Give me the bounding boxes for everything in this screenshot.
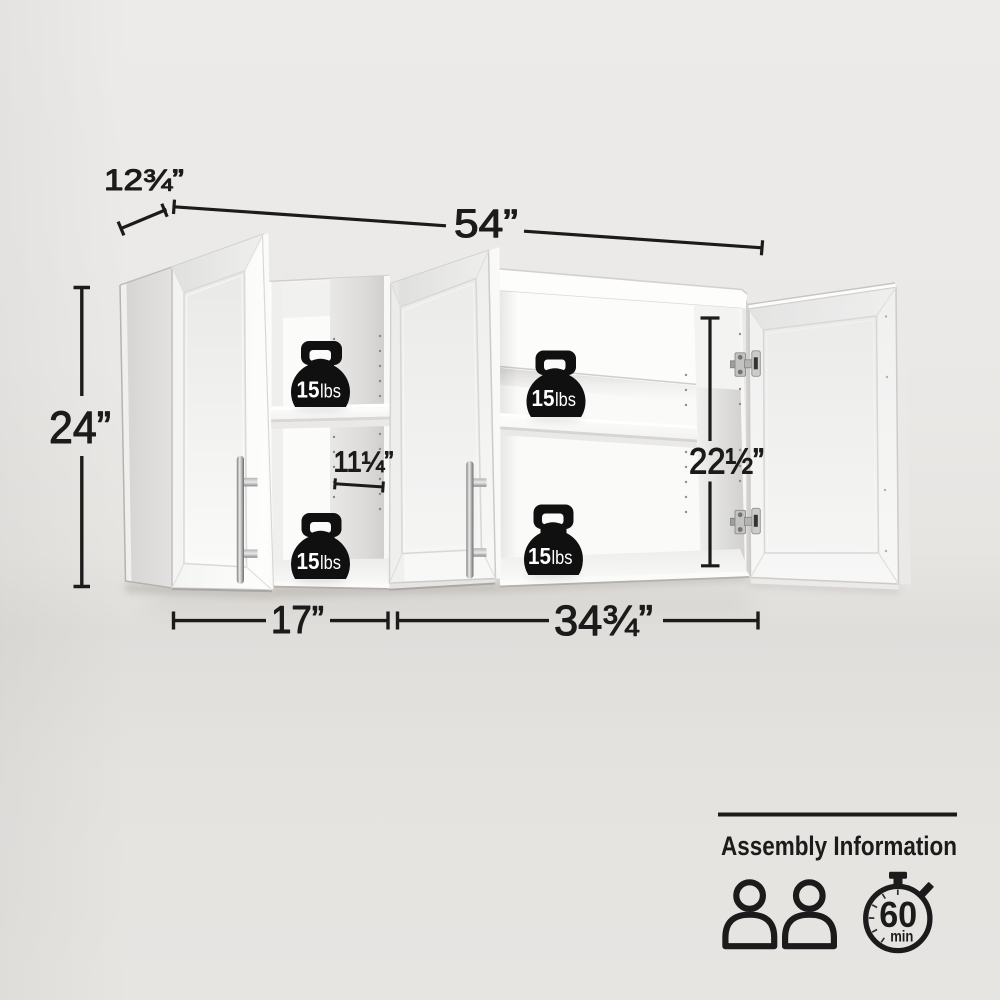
svg-text:15lbs: 15lbs [297,377,342,403]
svg-text:11¼”: 11¼” [334,447,394,479]
svg-text:22½”: 22½” [689,441,764,482]
svg-text:17”: 17” [271,599,324,642]
svg-text:24”: 24” [49,402,111,453]
svg-text:12¾”: 12¾” [104,164,184,197]
svg-text:min: min [890,929,913,946]
svg-text:15lbs: 15lbs [532,385,577,411]
svg-text:15lbs: 15lbs [528,543,573,569]
svg-text:Assembly Information: Assembly Information [721,831,957,861]
svg-text:54”: 54” [454,202,518,246]
svg-text:15lbs: 15lbs [297,548,342,574]
svg-text:34¾”: 34¾” [554,597,653,645]
